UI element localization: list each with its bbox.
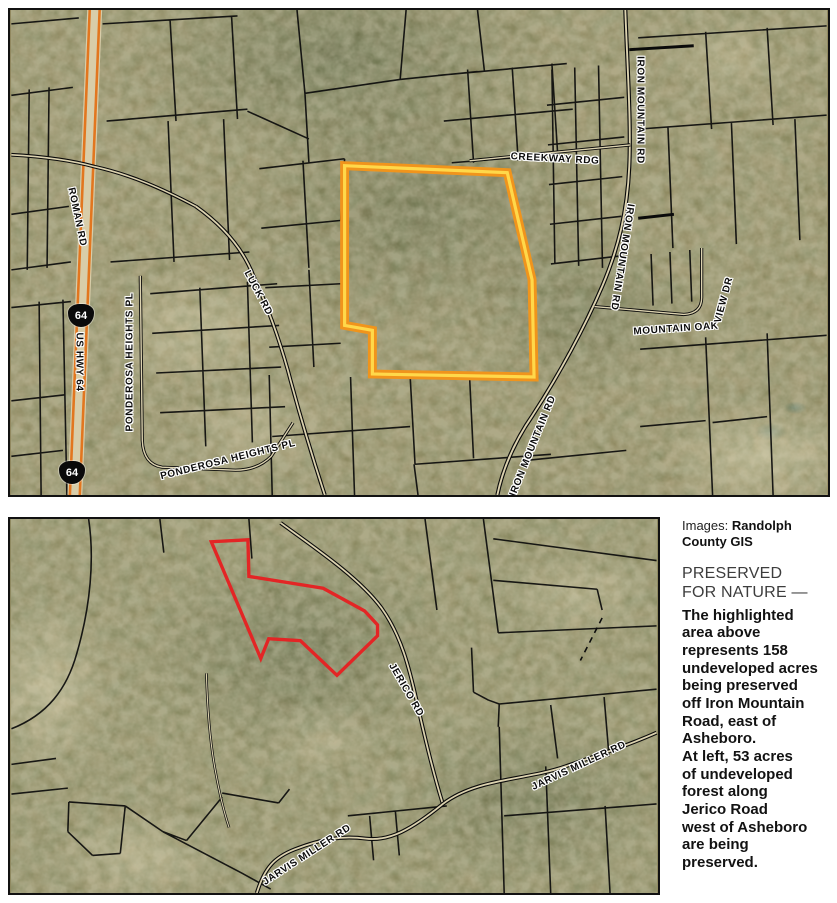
caption-heading: PRESERVED FOR NATURE — (682, 564, 834, 603)
caption-column: Images: Randolph County GIS PRESERVED FO… (682, 518, 834, 872)
us-64-shield-number: 64 (66, 467, 78, 479)
aerial-map-iron-mountain: ROMAN RD 64 US HWY 64 64 PONDEROSA HEIGH… (8, 8, 830, 497)
road-label-ponderosa-heights-pl-vertical: PONDEROSA HEIGHTS PL (125, 293, 136, 432)
aerial-map-jerico-road: JERICO RD JARVIS MILLER RD JARVIS MILLER… (8, 517, 660, 895)
image-credit-prefix: Images: (682, 518, 732, 533)
image-credit: Images: Randolph County GIS (682, 518, 834, 551)
road-label-iron-mountain-rd-top: IRON MOUNTAIN RD (635, 56, 646, 164)
page: ROMAN RD 64 US HWY 64 64 PONDEROSA HEIGH… (0, 0, 837, 903)
road-label-us-hwy-64: US HWY 64 (74, 332, 85, 391)
us-64-shield-number: 64 (75, 310, 87, 322)
caption-body: The highlighted area above represents 15… (682, 607, 834, 872)
